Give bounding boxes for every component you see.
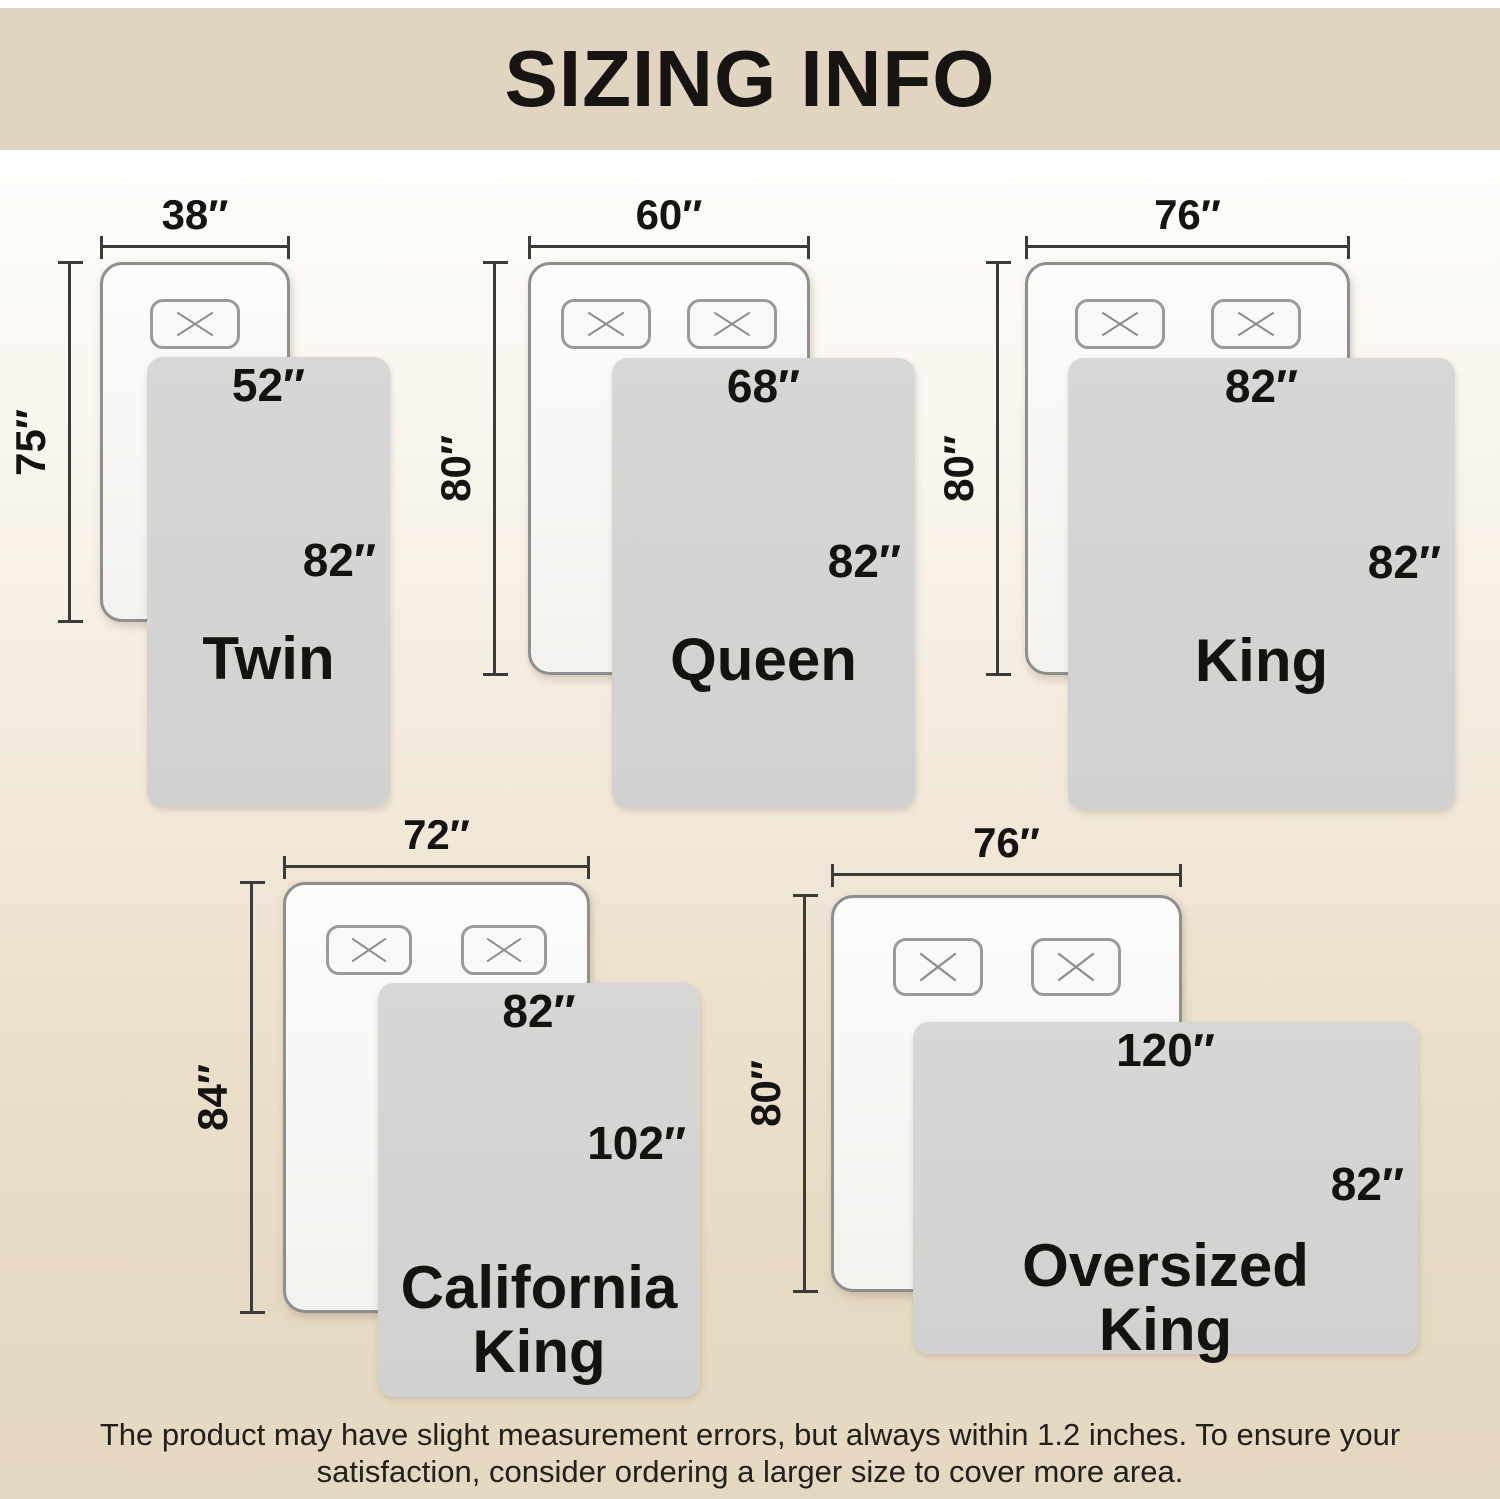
size-name-label: Twin [147,627,390,691]
blanket-width-label: 82″ [1068,363,1455,409]
pillow-icon [461,925,547,975]
blanket-length-label: 82″ [303,537,376,583]
bed-width-label: 38″ [40,194,350,236]
length-dimension-line: 80″ [803,895,806,1292]
blanket-rect: 68″ 82″ Queen [612,358,915,808]
blanket-width-label: 52″ [147,362,390,408]
disclaimer-line-2: satisfaction, consider ordering a larger… [0,1453,1500,1490]
pillow-icon [893,938,983,996]
size-name-label: Queen [612,628,915,692]
pillow-icon [687,299,777,349]
bed-length-label: 80″ [938,435,980,502]
pillow-icon [1031,938,1121,996]
header-band: SIZING INFO [0,8,1500,150]
length-dimension-line: 80″ [996,262,999,675]
blanket-width-label: 68″ [612,363,915,409]
width-dimension-line: 76″ [831,873,1182,876]
bed-width-label: 76″ [771,822,1242,864]
disclaimer-text: The product may have slight measurement … [0,1416,1500,1490]
blanket-length-label: 82″ [828,538,901,584]
pillow-icon [150,299,240,349]
pillow-icon [326,925,412,975]
blanket-rect: 52″ 82″ Twin [147,357,390,807]
page-title: SIZING INFO [505,33,996,125]
bed-length-label: 80″ [435,435,477,502]
bed-width-label: 76″ [965,194,1410,236]
blanket-width-label: 82″ [378,988,700,1034]
sizing-infographic: SIZING INFO 38″ 75″ 52″ 82″ Twin 60″ 80″ [0,0,1500,1499]
length-dimension-line: 80″ [493,262,496,675]
bed-length-label: 75″ [10,409,52,476]
width-dimension-line: 72″ [283,865,590,868]
pillow-icon [1075,299,1165,349]
width-dimension-line: 60″ [528,245,810,248]
blanket-length-label: 102″ [587,1120,686,1166]
blanket-rect: 82″ 102″ California King [378,983,700,1397]
pillow-icon [1211,299,1301,349]
blanket-width-label: 120″ [913,1027,1418,1073]
bed-width-label: 72″ [223,814,650,856]
bed-length-label: 84″ [192,1064,234,1131]
width-dimension-line: 38″ [100,245,290,248]
blanket-length-label: 82″ [1368,539,1441,585]
bed-width-label: 60″ [468,194,870,236]
width-dimension-line: 76″ [1025,245,1350,248]
blanket-rect: 82″ 82″ King [1068,358,1455,810]
length-dimension-line: 84″ [250,882,253,1313]
disclaimer-line-1: The product may have slight measurement … [0,1416,1500,1453]
length-dimension-line: 75″ [68,262,71,622]
size-name-label: California King [374,1256,704,1383]
bed-length-label: 80″ [745,1060,787,1127]
blanket-rect: 120″ 82″ Oversized King [913,1022,1418,1354]
size-name-label: King [1068,629,1455,693]
pillow-icon [561,299,651,349]
blanket-length-label: 82″ [1331,1161,1404,1207]
size-name-label: Oversized King [996,1234,1336,1361]
